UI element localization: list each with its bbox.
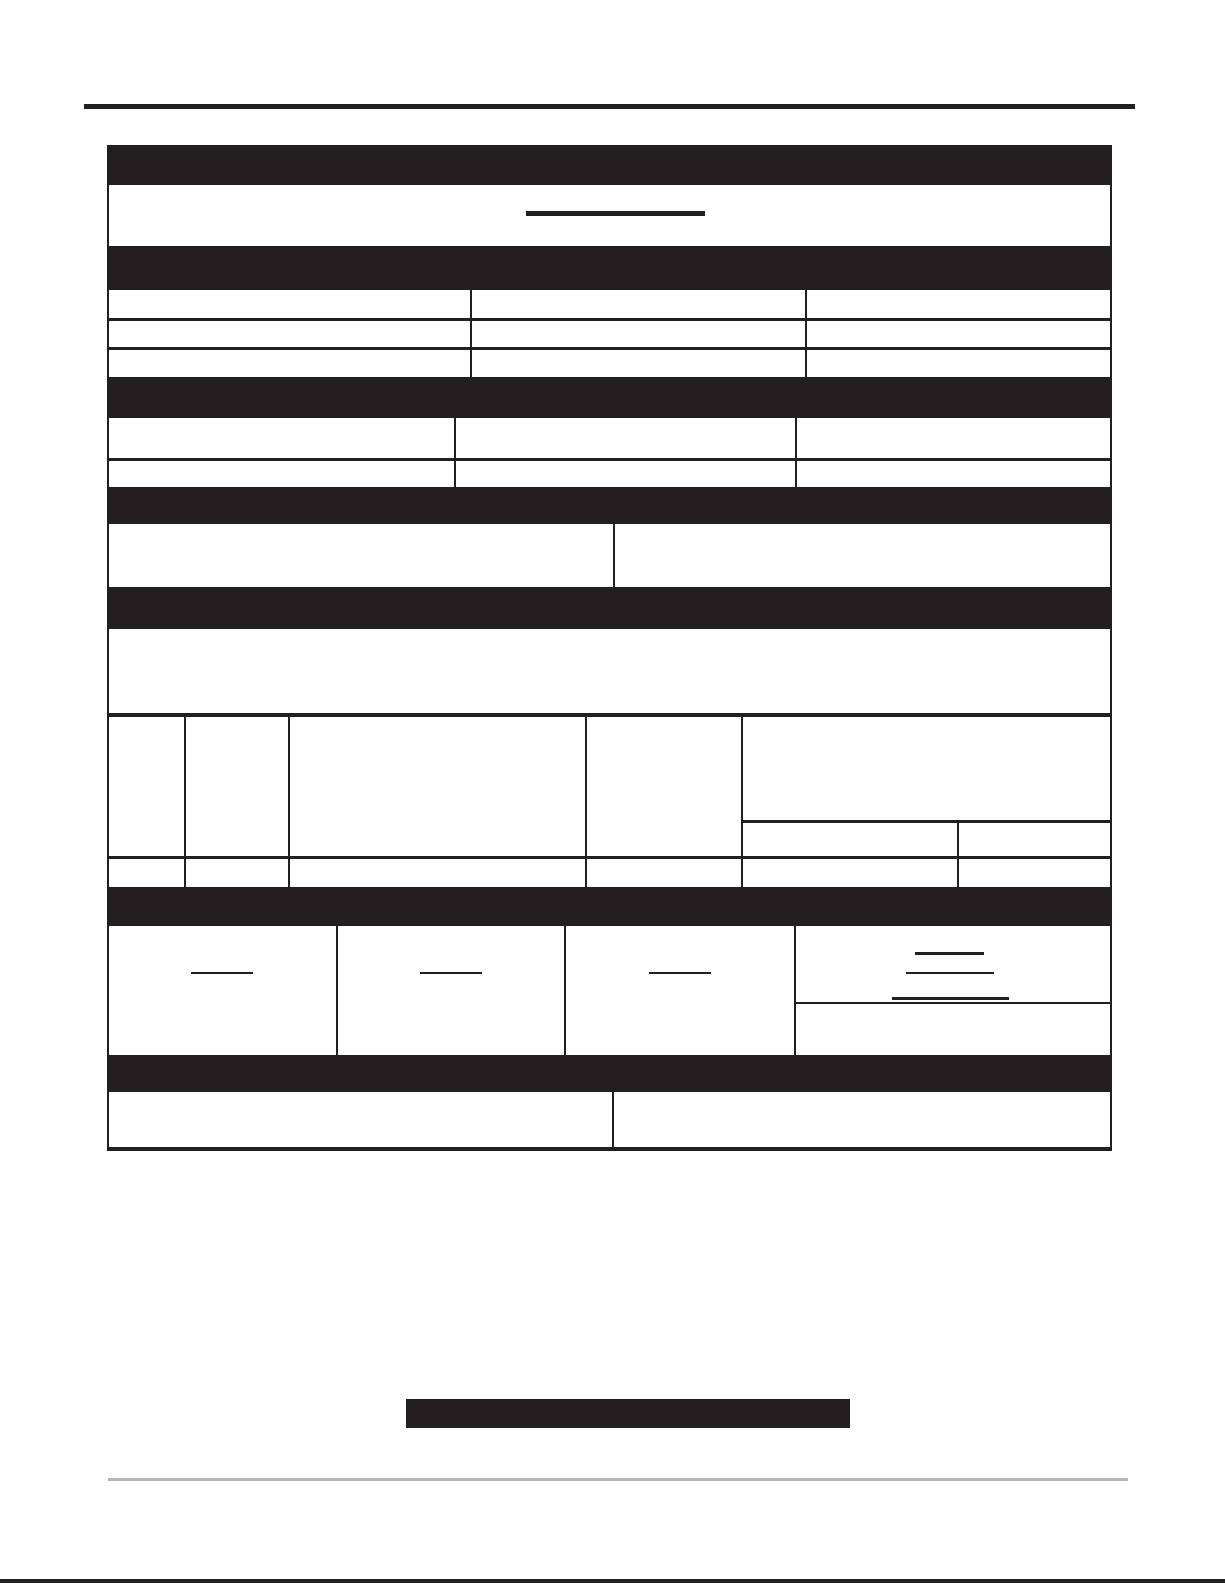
column-divider [454, 418, 456, 487]
title-box [107, 183, 1112, 248]
table-1 [107, 288, 1112, 379]
column-divider [288, 717, 290, 889]
section-header-bar-7 [107, 1058, 1112, 1090]
row-divider [109, 458, 1110, 461]
row-divider [109, 856, 1110, 859]
column-divider [470, 290, 472, 377]
footer-table [107, 1090, 1112, 1151]
column-divider [585, 717, 587, 889]
column-divider [184, 717, 186, 889]
section-header-bar-4 [107, 489, 1112, 522]
column-divider [612, 1092, 614, 1147]
signature-table [107, 924, 1112, 1058]
section-header-bar-5 [107, 590, 1112, 627]
sub-row-divider [794, 1002, 1110, 1004]
row-divider [109, 347, 1110, 350]
grid-table [107, 715, 1112, 890]
top-rule [84, 104, 1135, 109]
table-3 [107, 522, 1112, 590]
column-divider [741, 717, 743, 889]
table-2 [107, 416, 1112, 489]
wide-cell [107, 627, 1112, 715]
sub-column-divider [957, 820, 959, 889]
column-divider [805, 290, 807, 377]
title-fill-line [526, 211, 705, 216]
sub-row-divider [741, 820, 1110, 823]
column-divider [336, 926, 338, 1056]
scan-edge [0, 1579, 1225, 1583]
fill-line-col4-a [915, 952, 984, 955]
fill-line-col1 [191, 972, 253, 974]
footer-black-box [406, 1399, 850, 1428]
column-divider [564, 926, 566, 1056]
section-header-bar-3 [107, 379, 1112, 416]
scanned-form-page [0, 0, 1225, 1585]
section-header-bar-2 [107, 248, 1112, 288]
row-divider [109, 318, 1110, 321]
column-divider [613, 524, 615, 587]
fill-line-col2 [420, 972, 482, 974]
footer-rule [108, 1478, 1128, 1481]
fill-line-col4-c [892, 997, 1009, 1000]
column-divider [795, 418, 797, 487]
column-divider [794, 926, 796, 1056]
fill-line-col4-b [906, 972, 994, 974]
section-header-bar-6 [107, 890, 1112, 924]
section-header-bar-1 [107, 145, 1112, 183]
fill-line-col3 [649, 972, 711, 974]
